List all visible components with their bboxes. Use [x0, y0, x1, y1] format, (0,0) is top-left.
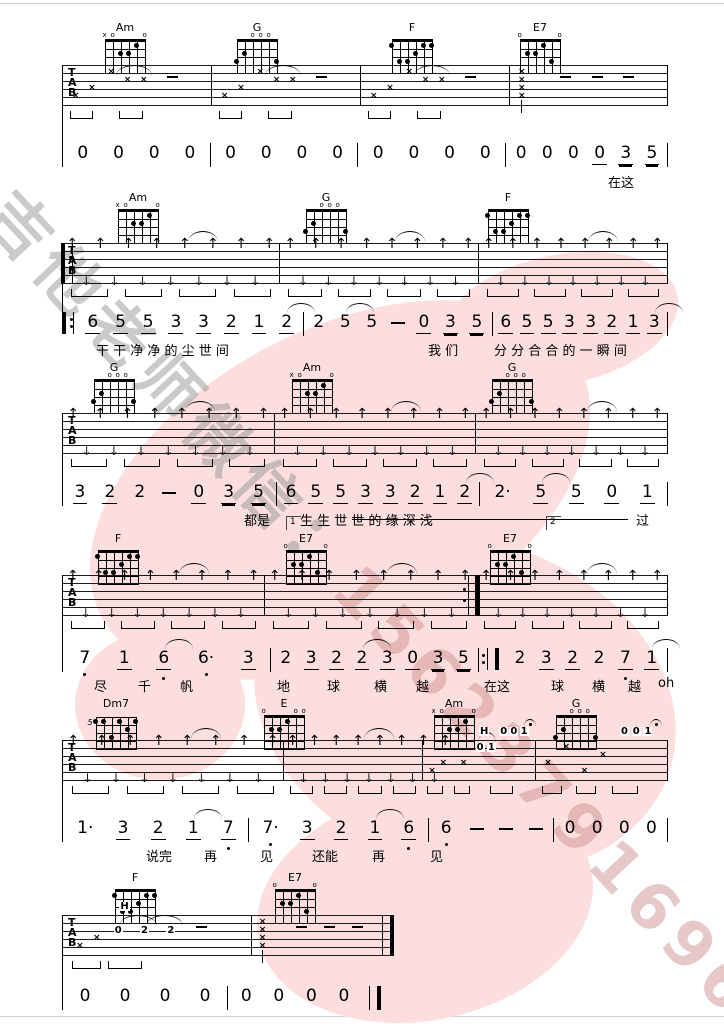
slur-arc [188, 231, 218, 242]
chord-name: G [302, 192, 350, 203]
down-stroke-arrow: ↓ [544, 274, 554, 288]
chord-nut [264, 715, 305, 717]
tab-measure: ↑↓↑↓↑↓↑↓↑↓↑↓↑↓↑ [62, 243, 280, 284]
melody-measure: 322035 [62, 482, 277, 506]
tab-letter-b: B [68, 436, 76, 446]
down-stroke-arrow: ↓ [400, 274, 410, 288]
mute-x-mark: × [221, 92, 229, 101]
open-string-marker: o [578, 708, 582, 715]
tab-measure: ××H022 [62, 915, 252, 956]
up-stroke-arrow: ↑ [627, 407, 639, 421]
chord-finger-dot [118, 51, 123, 56]
chord-finger-dot [593, 735, 598, 740]
down-stroke-arrow: ↓ [139, 771, 149, 785]
up-stroke-arrow: ↑ [480, 407, 492, 421]
melody-note: 0 [259, 143, 274, 164]
melody-note: 0 [294, 143, 309, 164]
melody-note: 0 [442, 143, 457, 164]
up-stroke-arrow: ↑ [505, 407, 517, 421]
up-stroke-arrow: ↑ [651, 407, 663, 421]
lyric-text: 还能 [312, 846, 338, 865]
melody-note: 6· [196, 648, 216, 669]
beam-row [63, 459, 274, 468]
chord-nut [392, 39, 433, 41]
slur-arc [588, 231, 618, 242]
tie-arc [655, 303, 683, 313]
melody-note: 2 [513, 648, 528, 669]
system-left-line [62, 575, 63, 650]
melody-line: 000000000000000035 [62, 143, 668, 169]
chord-finger-dot [95, 554, 100, 559]
melody-line: 6553321225503565533213 [62, 312, 668, 338]
lyric-text: 地 [277, 676, 290, 695]
up-stroke-arrow: ↑ [554, 569, 566, 583]
note-stem [521, 100, 522, 113]
duration-dash [499, 828, 513, 830]
chord-finger-dot [117, 719, 122, 724]
lyric-text: 都是 [244, 510, 270, 529]
tab-measure: ↑↓↑↓↑↓↑↓↑↓↑↓↑↓↑ [284, 740, 423, 781]
down-stroke-arrow: ↓ [592, 274, 602, 288]
melody-note: 3 [241, 648, 256, 670]
chord-nut [306, 209, 347, 211]
down-stroke-arrow: ↓ [349, 274, 359, 288]
lyric-text: 越 [416, 676, 429, 695]
mute-x-mark: × [289, 76, 297, 85]
mute-x-mark: × [140, 76, 148, 85]
down-stroke-arrow: ↓ [298, 274, 308, 288]
tab-fret-number: 1 [643, 727, 652, 736]
tab-measure: ××××× [361, 65, 510, 106]
beam-row [423, 786, 536, 795]
strum-arrows: ↑↓↑↓↑↓↑↓↑↓↑↓↑↓↑ [480, 407, 663, 458]
up-stroke-arrow: ↑ [96, 734, 108, 748]
melody-note: 6 [85, 312, 100, 334]
tab-fret-number: 2 [140, 926, 149, 935]
open-string-marker: o [259, 32, 263, 39]
strum-arrows: ↑↓↑↓↑↓↑↓↑↓↑↓↑↓↑ [480, 569, 663, 620]
up-stroke-arrow: ↑ [627, 569, 639, 583]
melody-note: 0 [271, 986, 286, 1007]
melody-note: 0 [644, 818, 659, 839]
melody-note: 5 [113, 312, 128, 334]
strum-arrows: ↑↓↑↓↑↓↑↓↑↓↑↓↑↓↑ [67, 734, 278, 785]
up-stroke-arrow: ↑ [149, 407, 161, 421]
melody-note: 3 [304, 648, 319, 670]
chord-name: F [111, 872, 159, 883]
open-string-marker: o [116, 372, 120, 379]
melody-note: 0 [371, 143, 386, 164]
down-stroke-arrow: ↓ [184, 606, 194, 620]
melody-note: 3 [647, 312, 662, 334]
melody-note: 3 [168, 312, 183, 334]
down-stroke-arrow: ↓ [567, 606, 577, 620]
melody-note: 0 [590, 818, 605, 839]
guitar-tab-sheet: 吉他老师微信：15623791696 AmxooGoooFE7ooTAB××××… [0, 0, 724, 1024]
down-stroke-arrow: ↓ [311, 606, 321, 620]
rhythm-beam [437, 289, 471, 297]
lyric-text: 再 [204, 846, 217, 865]
down-stroke-arrow: ↓ [82, 771, 92, 785]
up-stroke-arrow: ↑ [119, 569, 131, 583]
mute-x-mark: × [386, 84, 394, 93]
melody-measure: 1·3217 [62, 818, 249, 842]
mute-x-mark: × [599, 751, 607, 760]
melisma-rule [352, 519, 628, 520]
rhythm-beam [627, 621, 659, 629]
up-stroke-arrow: ↑ [330, 734, 342, 748]
strum-arrows: ↑↓↑↓↑↓↑↓↑↓↑↓↑↓↑ [284, 237, 474, 288]
melody-measure: 0000 [228, 986, 392, 1010]
up-stroke-arrow: ↑ [123, 237, 135, 251]
down-stroke-arrow: ↓ [374, 274, 384, 288]
open-string-marker: o [108, 372, 112, 379]
chord-nut [492, 379, 533, 381]
down-stroke-arrow: ↓ [396, 444, 406, 458]
up-stroke-arrow: ↑ [396, 734, 408, 748]
tab-staff: TAB↑↓↑↓↑↓↑↓↑↓↑↓↑↓↑↑↓↑↓↑↓↑↓↑↓↑↓↑↓↑×××H010… [62, 740, 668, 781]
mute-x-mark: × [256, 68, 264, 77]
tab-fret-number: 1 [487, 743, 496, 752]
tab-letter-b: B [68, 938, 76, 948]
chord-finger-dot [561, 727, 566, 732]
beam-row [212, 111, 360, 120]
tab-staff: TAB↑↓↑↓↑↓↑↓↑↓↑↓↑↓↑↑↓↑↓↑↓↑↓↑↓↑↓↑↓↑↑↓↑↓↑↓↑… [62, 575, 668, 616]
melody-note: 0 [78, 986, 93, 1007]
open-string-marker: o [514, 372, 518, 379]
rhythm-beam [431, 621, 467, 629]
melody-note: 3 [562, 312, 577, 334]
chord-finger-dot [134, 43, 139, 48]
down-stroke-arrow: ↓ [616, 606, 626, 620]
melody-note: 1 [368, 818, 383, 840]
down-stroke-arrow: ↓ [323, 274, 333, 288]
tab-fret-number: 0 [509, 727, 518, 736]
strum-arrows: ↑↓↑↓↑↓↑↓↑↓↑↓↑↓↑ [287, 734, 419, 785]
chord-finger-dot [549, 59, 554, 64]
tie-arc [194, 809, 222, 819]
melody-note: 2 [457, 482, 472, 504]
open-string-marker: o [488, 543, 492, 550]
rhythm-beam [393, 786, 416, 794]
rhythm-beam [234, 289, 271, 297]
chord-finger-dot [274, 59, 279, 64]
up-stroke-arrow: ↑ [352, 734, 364, 748]
mute-x-mark: × [562, 743, 570, 752]
down-stroke-arrow: ↓ [225, 771, 235, 785]
chord-finger-dot [497, 391, 502, 396]
up-stroke-arrow: ↑ [309, 734, 321, 748]
chord-finger-dot [421, 43, 426, 48]
chord-name: G [90, 362, 138, 373]
down-stroke-arrow: ↓ [196, 771, 206, 785]
chord-finger-dot [389, 43, 394, 48]
open-string-marker: o [330, 372, 334, 379]
melody-measure: 0000 [358, 143, 506, 167]
strum-arrows: ↑↓↑↓↑↓↑↓↑↓↑↓↑↓↑ [67, 407, 269, 458]
lyric-text: 在这 [608, 172, 634, 191]
up-stroke-arrow: ↑ [296, 569, 308, 583]
down-stroke-arrow: ↓ [496, 274, 506, 288]
chord-finger-dot [242, 51, 247, 56]
chord-finger-dot [139, 221, 144, 226]
chord-finger-dot [429, 43, 434, 48]
melody-note: 6 [156, 648, 171, 670]
melody-note: 7· [260, 818, 280, 839]
melody-note: 5 [645, 143, 660, 165]
down-stroke-arrow: ↓ [194, 274, 204, 288]
mute-x-mark: × [422, 76, 430, 85]
system-left-line [62, 740, 63, 820]
melody-note: 0 [147, 143, 162, 164]
melody-note: 0 [617, 818, 632, 839]
melody-note: 0 [118, 986, 133, 1007]
down-stroke-arrow: ↓ [342, 771, 352, 785]
chord-finger-dot [525, 213, 530, 218]
melody-note: 3 [221, 482, 236, 504]
chord-finger-dot [307, 554, 312, 559]
melody-note: 5 [469, 312, 484, 334]
repeat-start-barline [61, 243, 73, 284]
down-stroke-arrow: ↓ [320, 771, 330, 785]
open-string-marker: o [143, 32, 147, 39]
melody-note: 2 [592, 648, 607, 669]
chord-finger-dot [489, 399, 494, 404]
chord-finger-dot [131, 221, 136, 226]
melody-note: 0 [540, 143, 555, 164]
melody-note: 1· [75, 818, 95, 839]
chord-finger-dot [133, 719, 138, 724]
up-stroke-arrow: ↑ [554, 407, 566, 421]
mute-x-mark: × [544, 759, 552, 768]
rhythm-beam [612, 786, 638, 794]
up-stroke-arrow: ↑ [153, 734, 165, 748]
melody-note: 3 [443, 312, 458, 334]
melody-note: 5 [364, 312, 379, 333]
rhythm-beam [229, 459, 265, 467]
chord-finger-dot [144, 893, 149, 898]
open-string-marker: o [262, 708, 266, 715]
lyric-text: 说完 [146, 846, 172, 865]
melody-note: 0 [182, 143, 197, 164]
down-stroke-arrow: ↓ [292, 444, 302, 458]
down-stroke-arrow: ↓ [109, 274, 119, 288]
tab-dash [560, 76, 571, 78]
down-stroke-arrow: ↓ [518, 606, 528, 620]
up-stroke-arrow: ↑ [258, 407, 270, 421]
tab-staff: TAB××××××××××××××××××× [62, 65, 668, 106]
melody-note: 0 [330, 143, 345, 164]
up-stroke-arrow: ↑ [151, 237, 163, 251]
lyric-text: 见 [260, 846, 273, 865]
up-stroke-arrow: ↑ [460, 407, 472, 421]
up-stroke-arrow: ↑ [238, 734, 250, 748]
chord-finger-dot [463, 719, 468, 724]
tab-staff: TAB↑↓↑↓↑↓↑↓↑↓↑↓↑↓↑↑↓↑↓↑↓↑↓↑↓↑↓↑↓↑↑↓↑↓↑↓↑… [62, 413, 668, 454]
beam-row [284, 786, 422, 795]
tab-dash [296, 926, 307, 928]
chord-nut [434, 715, 475, 717]
chord-finger-dot [495, 562, 500, 567]
hammer-on-label: H [479, 727, 489, 736]
tab-fret-number: 0 [632, 727, 641, 736]
lyric-text: 见 [430, 846, 443, 865]
beam-row [275, 459, 476, 468]
up-stroke-arrow: ↑ [361, 237, 373, 251]
melody-note: 2 [278, 648, 293, 669]
down-stroke-arrow: ↓ [245, 444, 255, 458]
melody-note: 0 [514, 143, 529, 164]
tab-fret-number: 0 [499, 727, 508, 736]
melody-note: 0 [75, 143, 90, 164]
duration-dash [529, 828, 543, 830]
up-stroke-arrow: ↑ [531, 237, 543, 251]
chord-name: F [484, 192, 532, 203]
down-stroke-arrow: ↓ [591, 444, 601, 458]
open-string-marker: o [156, 202, 160, 209]
lyric-text: 再 [372, 846, 385, 865]
melody-note: 2 [279, 312, 294, 334]
up-stroke-arrow: ↑ [330, 407, 342, 421]
melody-line: 00000000 [62, 986, 392, 1012]
chord-finger-dot [285, 719, 290, 724]
tab-measure: ↑↓↑↓↑↓↑↓↑↓↑↓↑↓↑ [479, 243, 668, 284]
melody-repeat-start [62, 312, 74, 334]
melody-note: 1 [644, 648, 659, 670]
up-stroke-arrow: ↑ [507, 237, 519, 251]
down-stroke-arrow: ↓ [520, 274, 530, 288]
final-barline [382, 915, 394, 956]
open-string-marker: o [324, 543, 328, 550]
open-string-marker: o [273, 882, 277, 889]
down-stroke-arrow: ↓ [567, 444, 577, 458]
lyric-text: 我 们 [428, 340, 458, 359]
down-stroke-arrow: ↓ [542, 606, 552, 620]
strum-arrows: ↑↓↑↓↑↓↑↓↑↓↑↓↑↓↑ [279, 407, 472, 458]
melody-note: 0 [604, 482, 619, 504]
melody-note: 5 [569, 482, 584, 504]
down-stroke-arrow: ↓ [253, 771, 263, 785]
mute-x-mark: × [237, 84, 245, 93]
melody-note: 1 [640, 482, 655, 504]
melody-measure: 23223035 [271, 648, 479, 672]
rhythm-beam [222, 621, 256, 629]
tie-arc [652, 639, 680, 649]
system-left-line [62, 915, 63, 988]
up-stroke-arrow: ↑ [462, 237, 474, 251]
tab-dash [623, 76, 634, 78]
melody-note: 2 [604, 312, 619, 334]
tab-measure: ××××001 [536, 740, 668, 781]
chord-finger-dot [541, 43, 546, 48]
lyric-text: 尽 [94, 676, 107, 695]
melody-note: 3 [383, 482, 398, 504]
chord-finger-dot [553, 735, 558, 740]
beam-row [63, 621, 264, 630]
mute-x-mark: × [438, 76, 446, 85]
beam-row [479, 289, 667, 298]
melody-measure: 0000 [554, 818, 668, 842]
slur-arc [395, 231, 425, 242]
rhythm-beam [433, 459, 467, 467]
melody-note: 0 [416, 312, 431, 334]
up-stroke-arrow: ↑ [287, 734, 299, 748]
lyric-text: 球 [551, 676, 564, 695]
melody-note: 2 [329, 648, 344, 670]
tab-measure: ↑↓↑↓↑↓↑↓↑↓↑↓↑↓↑ [62, 740, 284, 781]
melody-note: 2 [224, 312, 239, 334]
chord-finger-dot [234, 59, 239, 64]
beam-row [265, 621, 476, 630]
mute-x-mark: × [439, 759, 447, 768]
repeat-dot [69, 256, 72, 259]
down-stroke-arrow: ↓ [136, 444, 146, 458]
tab-fret-number: 1 [520, 727, 529, 736]
melody-note: 2 [334, 818, 349, 840]
tab-dash [324, 926, 335, 928]
beam-row [280, 289, 478, 298]
melody-measure: 65533212 [277, 482, 481, 506]
beam-row [476, 459, 667, 468]
chord-name: G [488, 362, 536, 373]
open-string-marker: o [518, 32, 522, 39]
chord-finger-dot [127, 554, 132, 559]
down-stroke-arrow: ↓ [344, 444, 354, 458]
melody-note: 1 [117, 648, 132, 670]
melody-note: 1 [626, 312, 641, 334]
tab-fret-number: 0 [620, 727, 629, 736]
melody-note: 0 [406, 143, 421, 164]
up-stroke-arrow: ↑ [434, 407, 446, 421]
duration-dash [162, 492, 176, 494]
melody-note: 5 [541, 312, 556, 334]
down-stroke-arrow: ↓ [392, 606, 402, 620]
down-stroke-arrow: ↓ [236, 606, 246, 620]
melody-line: 322035655332122·5501 [62, 482, 668, 508]
chord-nut [286, 550, 327, 552]
melody-note: 5 [308, 482, 323, 504]
down-stroke-arrow: ↓ [616, 274, 626, 288]
down-stroke-arrow: ↓ [591, 606, 601, 620]
chord-finger-dot [313, 391, 318, 396]
down-stroke-arrow: ↓ [447, 444, 457, 458]
page-top-edge [0, 3, 724, 4]
chord-finger-dot [533, 51, 538, 56]
tab-fret-number: 0 [114, 926, 123, 935]
muted-string-marker: x [116, 202, 120, 209]
chord-finger-dot [125, 727, 130, 732]
melody-note: 5 [533, 482, 548, 504]
lyric-text: 过 [636, 510, 649, 529]
chord-finger-dot [131, 399, 136, 404]
chord-finger-dot [303, 229, 308, 234]
tab-dash [316, 76, 327, 78]
down-stroke-arrow: ↓ [338, 606, 348, 620]
down-stroke-arrow: ↓ [542, 444, 552, 458]
open-string-marker: o [336, 202, 340, 209]
melody-note: 5 [333, 482, 348, 504]
down-stroke-arrow: ↓ [210, 606, 220, 620]
melody-note: 2· [493, 482, 513, 503]
tab-measure: ××××× [212, 65, 361, 106]
mute-x-mark: × [581, 767, 589, 776]
strum-arrows: ↑↓↑↓↑↓↑↓↑↓↑↓↑↓↑ [67, 569, 260, 620]
up-stroke-arrow: ↑ [279, 407, 291, 421]
lyric-text: 球 [327, 676, 340, 695]
down-stroke-arrow: ↓ [283, 606, 293, 620]
chord-name: Dm7 [92, 698, 140, 709]
chord-finger-dot [288, 901, 293, 906]
